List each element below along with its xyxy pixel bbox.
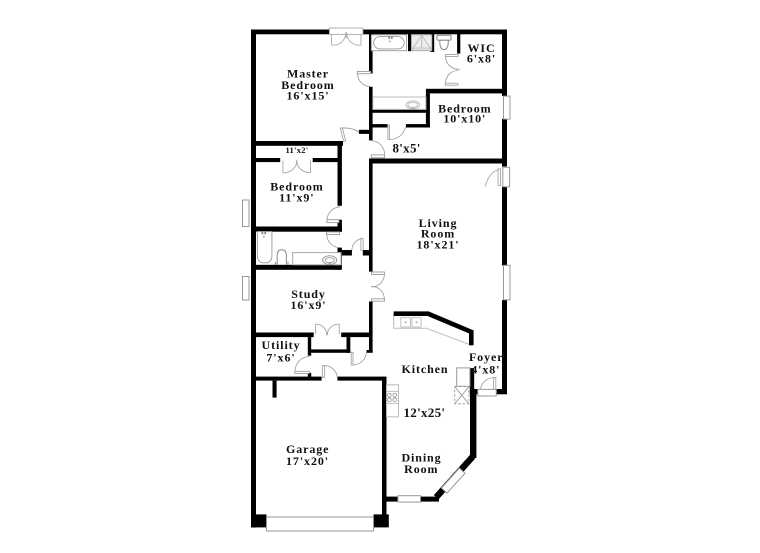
- svg-text:18'x21': 18'x21': [417, 237, 460, 251]
- svg-text:7'x6': 7'x6': [266, 351, 295, 365]
- svg-text:11'x9': 11'x9': [279, 191, 314, 205]
- svg-text:17'x20': 17'x20': [286, 454, 329, 468]
- svg-text:8'x5': 8'x5': [392, 140, 420, 155]
- svg-text:11'x2': 11'x2': [285, 145, 308, 155]
- svg-text:Room: Room: [404, 462, 438, 476]
- svg-text:12'x25': 12'x25': [403, 405, 445, 420]
- svg-text:6'x8': 6'x8': [467, 52, 496, 66]
- svg-text:4'x8': 4'x8': [471, 362, 500, 376]
- svg-text:10'x10': 10'x10': [443, 112, 486, 126]
- svg-text:16'x15': 16'x15': [287, 89, 330, 103]
- svg-text:Kitchen: Kitchen: [402, 362, 449, 376]
- svg-text:16'x9': 16'x9': [290, 298, 326, 312]
